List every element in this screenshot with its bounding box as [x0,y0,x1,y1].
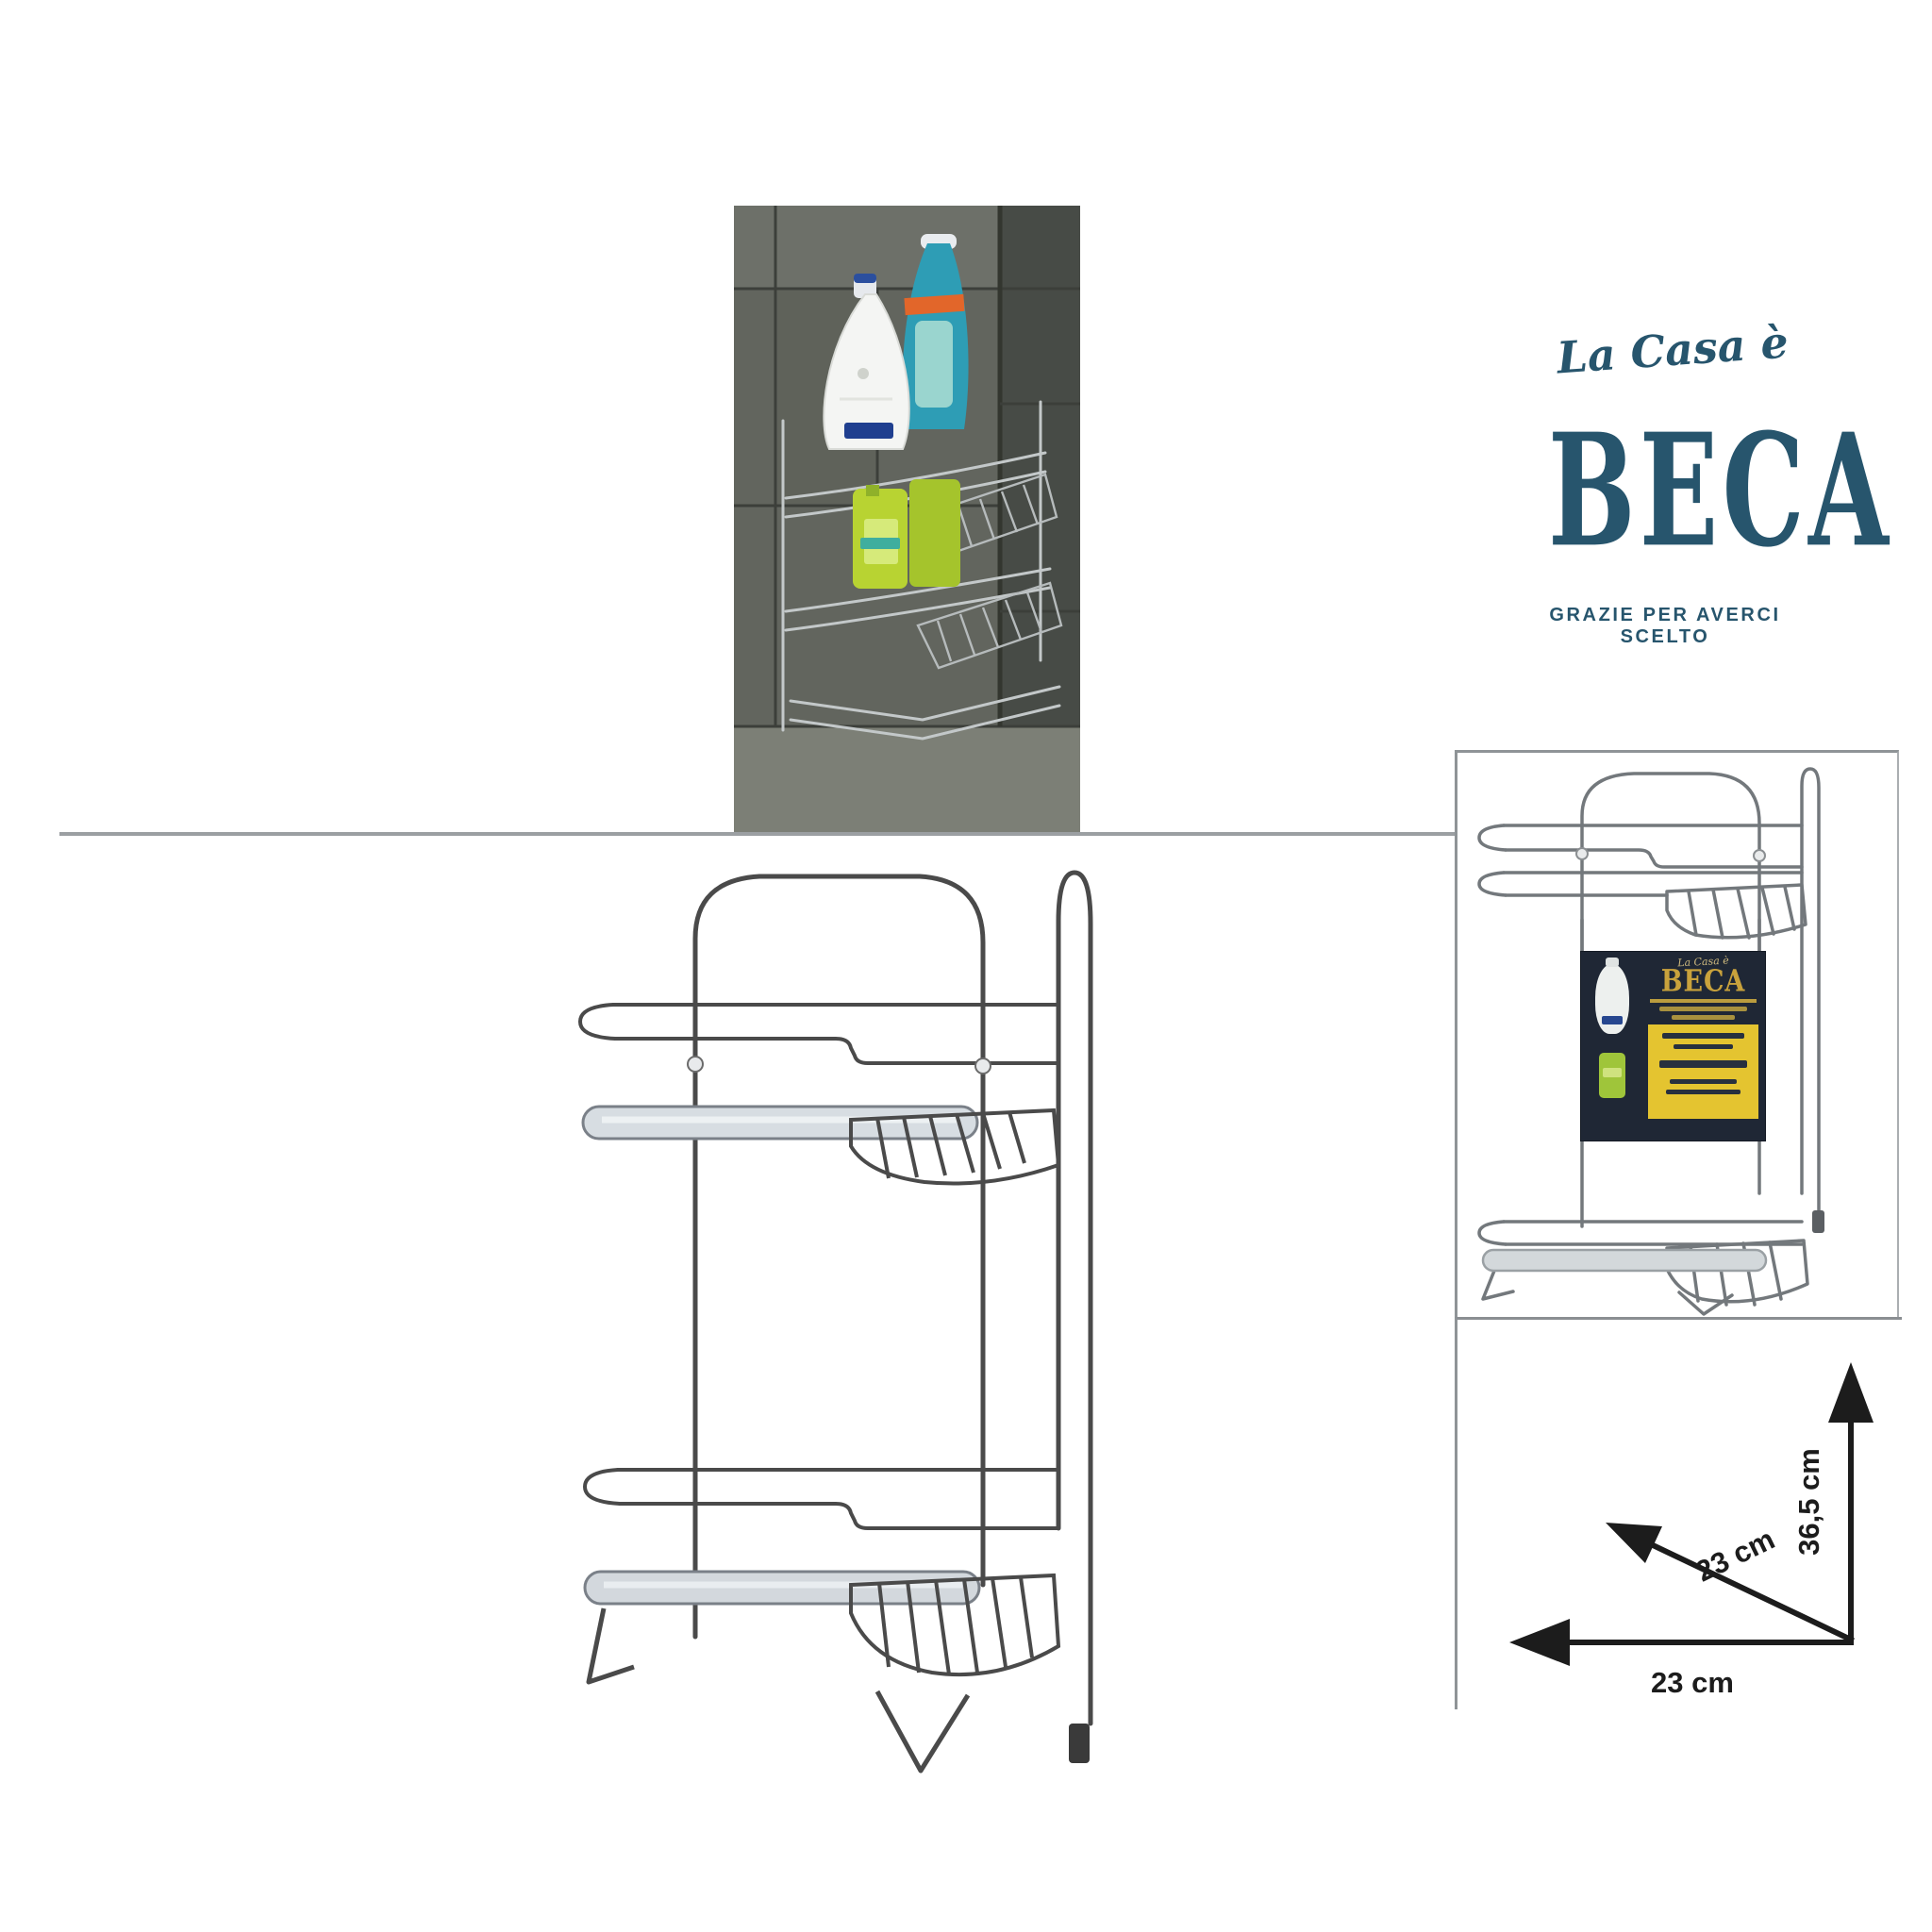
product-line-drawing [557,863,1123,1778]
handle-arch [695,876,983,1090]
card-product-photos [1580,951,1646,1141]
brand-name-text: BECA [1548,413,1892,568]
shower-floor [734,726,1080,832]
panel-text-bar [1674,1044,1733,1049]
card-green-bottle [1599,1053,1625,1098]
brand-tagline: GRAZIE PER AVERCI SCELTO [1507,605,1823,648]
brand-name: BECA [1481,413,1849,557]
card-info-panel [1648,1024,1758,1119]
dimension-label-height: 36,5 cm [1792,1448,1825,1556]
dimensions-diagram: 36,5 cm 23 cm 23 cm [1455,1317,1902,1709]
panel-text-bar [1659,1060,1747,1068]
green-bottles [853,479,960,589]
dimension-label-width: 23 cm [1651,1666,1734,1699]
dimension-label-depth: 23 cm [1690,1523,1779,1589]
wire-feet [589,1608,968,1771]
post-knob [975,1058,991,1074]
card-brand-name: BECA [1654,967,1753,997]
post-knob [688,1057,703,1072]
back-post-foot [1069,1724,1090,1763]
brand-script: La Casa è [1534,315,1810,385]
card-gold-rule [1650,999,1757,1003]
card-text-bar [1672,1015,1736,1020]
back-post [1058,873,1091,1724]
panel-text-bar [1666,1090,1740,1094]
product-sheet: La Casa è BECA GRAZIE PER AVERCI SCELTO [0,0,1932,1932]
shower-photo [734,206,1080,832]
panel-text-bar [1670,1079,1737,1084]
section-divider [59,832,1456,836]
panel-text-bar [1662,1033,1744,1039]
card-text-bar [1659,1007,1748,1011]
card-white-bottle [1595,964,1629,1034]
package-card: La Casa è BECA [1580,951,1766,1141]
